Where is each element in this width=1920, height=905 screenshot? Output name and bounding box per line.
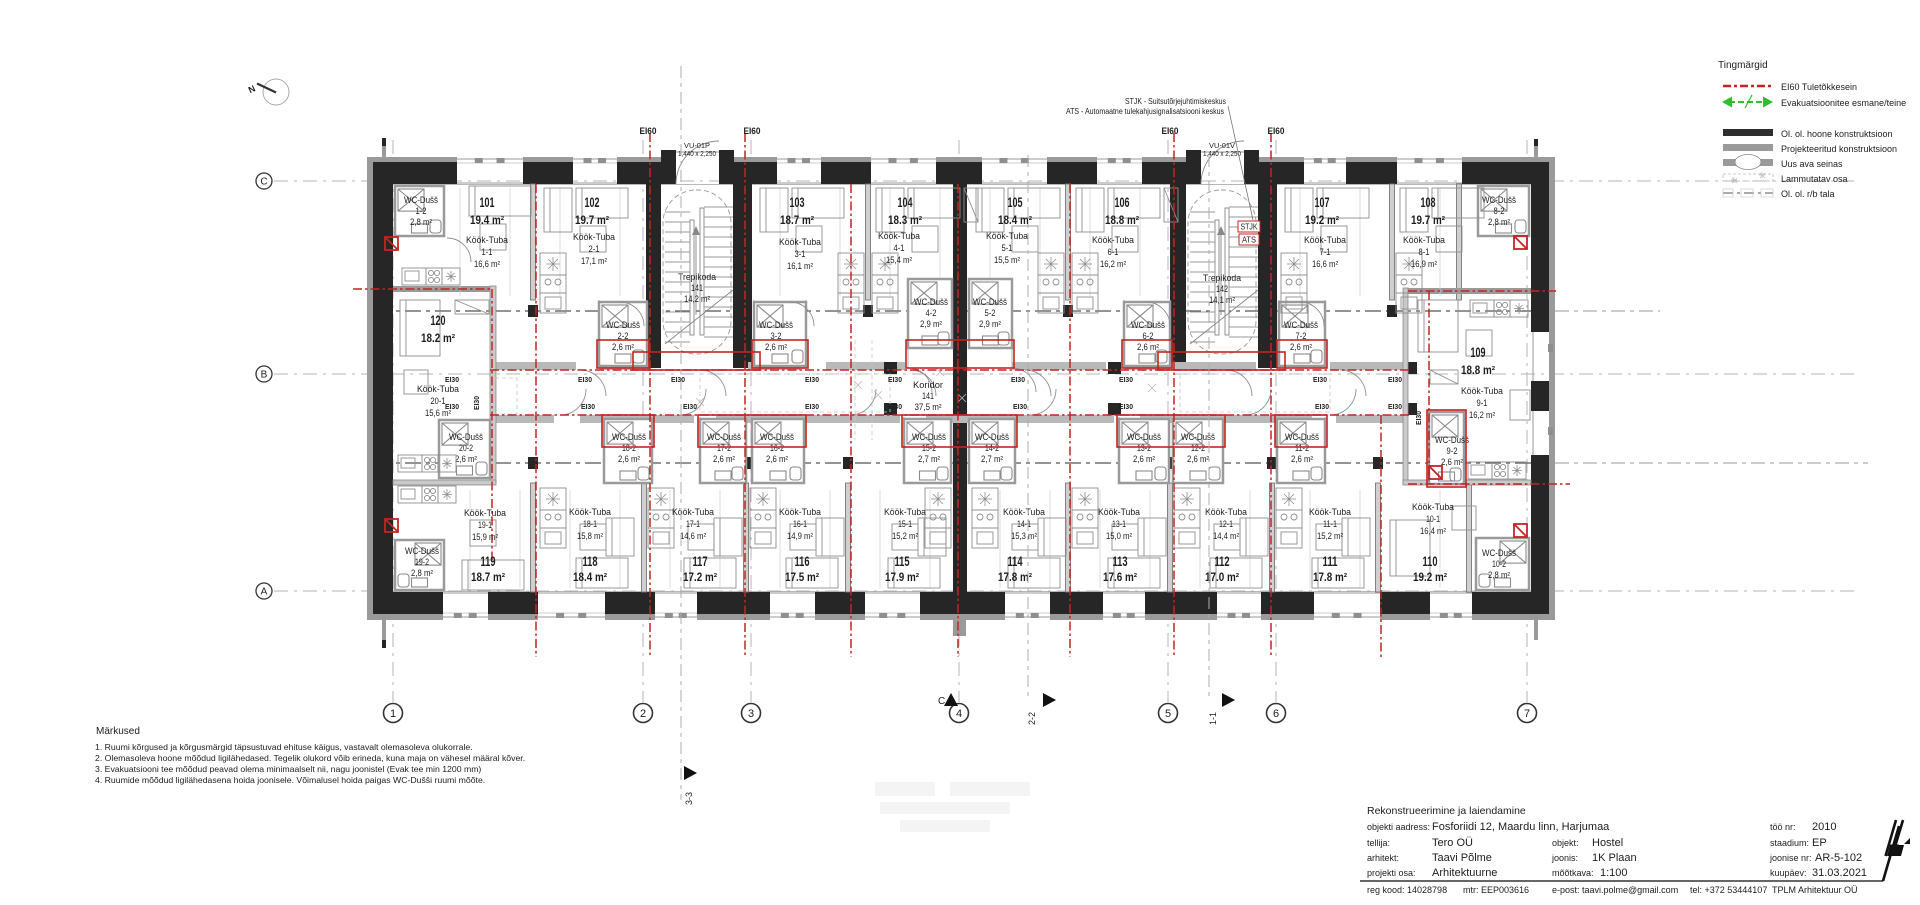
- svg-text:EI30: EI30: [1388, 402, 1402, 411]
- svg-text:17-1: 17-1: [686, 519, 700, 529]
- svg-text:Köök-Tuba: Köök-Tuba: [1309, 507, 1351, 517]
- svg-text:Rekonstrueerimine ja laiendami: Rekonstrueerimine ja laiendamine: [1367, 805, 1526, 817]
- svg-text:5: 5: [1165, 708, 1171, 720]
- svg-text:C: C: [938, 696, 945, 707]
- svg-text:18.4 m²: 18.4 m²: [573, 572, 607, 584]
- svg-text:115: 115: [895, 554, 910, 569]
- svg-text:Köök-Tuba: Köök-Tuba: [779, 507, 821, 517]
- svg-text:EI30: EI30: [1414, 411, 1423, 425]
- svg-text:2,8 m²: 2,8 m²: [410, 217, 432, 227]
- svg-text:mtr: EEP003616: mtr: EEP003616: [1463, 885, 1529, 895]
- svg-text:2,6 m²: 2,6 m²: [713, 454, 735, 464]
- svg-text:108: 108: [1421, 195, 1436, 210]
- svg-text:EI30: EI30: [1313, 375, 1327, 384]
- svg-text:2,6 m²: 2,6 m²: [765, 342, 787, 352]
- svg-text:2,8 m²: 2,8 m²: [1488, 570, 1510, 580]
- svg-text:13-1: 13-1: [1112, 519, 1126, 529]
- svg-text:16,9 m²: 16,9 m²: [1411, 259, 1437, 269]
- svg-text:WC-Dušš: WC-Dušš: [1131, 320, 1165, 330]
- svg-text:17.8 m²: 17.8 m²: [1313, 572, 1347, 584]
- svg-text:11-2: 11-2: [1295, 443, 1309, 453]
- svg-text:EI30: EI30: [888, 402, 902, 411]
- svg-text:TPLM Arhitektuur OÜ: TPLM Arhitektuur OÜ: [1772, 885, 1858, 895]
- svg-text:14-1: 14-1: [1017, 519, 1031, 529]
- svg-text:EI30: EI30: [578, 375, 592, 384]
- svg-text:112: 112: [1215, 554, 1230, 569]
- svg-text:20-2: 20-2: [459, 443, 473, 453]
- svg-text:Köök-Tuba: Köök-Tuba: [573, 232, 615, 242]
- svg-text:16,4 m²: 16,4 m²: [1420, 526, 1446, 536]
- svg-text:EI30: EI30: [581, 402, 595, 411]
- svg-text:6: 6: [1273, 708, 1279, 720]
- svg-text:2,6 m²: 2,6 m²: [1137, 342, 1159, 352]
- svg-text:17-2: 17-2: [717, 443, 731, 453]
- svg-text:Köök-Tuba: Köök-Tuba: [1205, 507, 1247, 517]
- svg-text:20-1: 20-1: [431, 396, 446, 406]
- svg-text:16,2 m²: 16,2 m²: [1469, 410, 1495, 420]
- svg-text:15,2 m²: 15,2 m²: [892, 531, 918, 541]
- svg-text:EI30: EI30: [1315, 402, 1329, 411]
- svg-text:2. Olemasoleva hoone mõõdud li: 2. Olemasoleva hoone mõõdud ligilähedase…: [95, 753, 525, 763]
- svg-text:Uus ava seinas: Uus ava seinas: [1781, 159, 1843, 169]
- svg-text:A: A: [261, 587, 268, 598]
- svg-text:Köök-Tuba: Köök-Tuba: [986, 231, 1028, 241]
- svg-text:5-1: 5-1: [1002, 243, 1013, 253]
- svg-text:AR-5-102: AR-5-102: [1815, 852, 1862, 864]
- svg-text:1-2: 1-2: [416, 206, 427, 216]
- svg-text:WC-Dušš: WC-Dušš: [1482, 195, 1516, 205]
- svg-text:2,6 m²: 2,6 m²: [1290, 342, 1312, 352]
- svg-text:WC-Dušš: WC-Dušš: [612, 432, 646, 442]
- svg-text:Koridor: Koridor: [913, 380, 943, 390]
- svg-text:ATS: ATS: [1242, 236, 1256, 245]
- svg-text:116: 116: [795, 554, 810, 569]
- svg-text:18-1: 18-1: [583, 519, 597, 529]
- svg-text:EI30: EI30: [888, 375, 902, 384]
- svg-text:120: 120: [431, 313, 446, 328]
- svg-text:e-post: taavi.polme@gmail.com: e-post: taavi.polme@gmail.com: [1552, 885, 1678, 895]
- svg-text:17.8 m²: 17.8 m²: [998, 572, 1032, 584]
- svg-text:EI30: EI30: [805, 375, 819, 384]
- svg-text:7-1: 7-1: [1320, 247, 1331, 257]
- svg-text:17,1 m²: 17,1 m²: [581, 256, 607, 266]
- svg-text:WC-Dušš: WC-Dušš: [707, 432, 741, 442]
- svg-text:2,6 m²: 2,6 m²: [618, 454, 640, 464]
- svg-text:18.8 m²: 18.8 m²: [1105, 215, 1139, 227]
- svg-text:10-1: 10-1: [1426, 514, 1440, 524]
- svg-text:37,5 m²: 37,5 m²: [915, 402, 942, 412]
- svg-text:EI30: EI30: [1388, 375, 1402, 384]
- svg-text:EI30: EI30: [445, 375, 459, 384]
- svg-text:102: 102: [585, 195, 600, 210]
- svg-text:3. Evakuatsiooni tee mõõdud pe: 3. Evakuatsiooni tee mõõdud peavad olema…: [95, 764, 481, 774]
- svg-text:14,9 m²: 14,9 m²: [787, 531, 813, 541]
- svg-text:14,4 m²: 14,4 m²: [1213, 531, 1239, 541]
- svg-text:WC-Dušš: WC-Dušš: [759, 320, 793, 330]
- svg-text:EI30: EI30: [1013, 402, 1027, 411]
- svg-text:4-1: 4-1: [894, 243, 905, 253]
- svg-text:103: 103: [790, 195, 805, 210]
- svg-text:2,8 m²: 2,8 m²: [411, 568, 433, 578]
- svg-text:Köök-Tuba: Köök-Tuba: [878, 231, 920, 241]
- svg-text:joonis:: joonis:: [1551, 853, 1578, 863]
- svg-text:9-2: 9-2: [1447, 446, 1458, 456]
- svg-text:WC-Dušš: WC-Dušš: [760, 432, 794, 442]
- svg-text:2,6 m²: 2,6 m²: [1187, 454, 1209, 464]
- svg-text:EI30: EI30: [1119, 402, 1133, 411]
- svg-text:Ol. ol. r/b tala: Ol. ol. r/b tala: [1781, 189, 1835, 199]
- svg-text:117: 117: [693, 554, 708, 569]
- svg-text:17.0 m²: 17.0 m²: [1205, 572, 1239, 584]
- svg-text:15,9 m²: 15,9 m²: [472, 532, 498, 542]
- svg-text:15,2 m²: 15,2 m²: [1317, 531, 1343, 541]
- svg-text:2,6 m²: 2,6 m²: [1133, 454, 1155, 464]
- svg-text:2-2: 2-2: [1027, 712, 1037, 725]
- svg-text:104: 104: [898, 195, 913, 210]
- svg-text:WC-Dušš: WC-Dušš: [973, 297, 1007, 307]
- svg-text:EI30: EI30: [1011, 375, 1025, 384]
- svg-text:17.6 m²: 17.6 m²: [1103, 572, 1137, 584]
- svg-text:Köök-Tuba: Köök-Tuba: [569, 507, 611, 517]
- svg-text:2,7 m²: 2,7 m²: [981, 454, 1003, 464]
- svg-text:3-1: 3-1: [795, 249, 806, 259]
- svg-text:15,3 m²: 15,3 m²: [1011, 531, 1037, 541]
- svg-text:18.7 m²: 18.7 m²: [780, 215, 814, 227]
- svg-text:WC-Dušš: WC-Dušš: [1181, 432, 1215, 442]
- svg-text:19.2 m²: 19.2 m²: [1413, 572, 1447, 584]
- svg-text:Köök-Tuba: Köök-Tuba: [1092, 235, 1134, 245]
- svg-text:19.4 m²: 19.4 m²: [470, 215, 504, 227]
- svg-text:Köök-Tuba: Köök-Tuba: [1098, 507, 1140, 517]
- svg-text:EI30: EI30: [671, 375, 685, 384]
- svg-text:16-2: 16-2: [770, 443, 784, 453]
- svg-text:Arhitektuurne: Arhitektuurne: [1432, 867, 1497, 879]
- svg-text:16,1 m²: 16,1 m²: [787, 261, 813, 271]
- svg-text:WC-Dušš: WC-Dušš: [912, 432, 946, 442]
- svg-text:staadium:: staadium:: [1770, 838, 1809, 848]
- svg-text:19.7 m²: 19.7 m²: [1411, 215, 1445, 227]
- svg-text:Köök-Tuba: Köök-Tuba: [417, 384, 459, 394]
- svg-text:15-2: 15-2: [922, 443, 936, 453]
- svg-text:EI30: EI30: [472, 396, 481, 410]
- svg-text:15,4 m²: 15,4 m²: [886, 255, 912, 265]
- svg-text:WC-Dušš: WC-Dušš: [1482, 548, 1516, 558]
- svg-text:141: 141: [922, 391, 934, 401]
- svg-text:19.7 m²: 19.7 m²: [575, 215, 609, 227]
- svg-text:Trepikoda: Trepikoda: [678, 272, 716, 282]
- svg-text:EI60: EI60: [1268, 126, 1285, 136]
- svg-text:110: 110: [1423, 554, 1438, 569]
- svg-text:9-1: 9-1: [1477, 398, 1488, 408]
- svg-text:2,9 m²: 2,9 m²: [979, 319, 1001, 329]
- svg-text:101: 101: [480, 195, 495, 210]
- svg-text:3-3: 3-3: [684, 792, 694, 805]
- svg-text:joonise nr:: joonise nr:: [1769, 853, 1812, 863]
- svg-text:4: 4: [956, 708, 962, 720]
- svg-text:WC-Dušš: WC-Dušš: [1285, 432, 1319, 442]
- svg-text:Köök-Tuba: Köök-Tuba: [779, 237, 821, 247]
- svg-text:11-1: 11-1: [1323, 519, 1337, 529]
- svg-text:2010: 2010: [1812, 821, 1836, 833]
- svg-text:141: 141: [691, 283, 703, 293]
- svg-text:Köök-Tuba: Köök-Tuba: [1003, 507, 1045, 517]
- svg-text:2,6 m²: 2,6 m²: [1441, 457, 1463, 467]
- svg-text:Märkused: Märkused: [96, 726, 140, 737]
- svg-text:119: 119: [481, 554, 496, 569]
- svg-text:Köök-Tuba: Köök-Tuba: [1461, 386, 1503, 396]
- svg-text:13-2: 13-2: [1137, 443, 1151, 453]
- svg-text:2,6 m²: 2,6 m²: [766, 454, 788, 464]
- svg-text:1: 1: [390, 708, 396, 720]
- svg-text:1-1: 1-1: [482, 247, 493, 257]
- svg-text:EI30: EI30: [683, 402, 697, 411]
- svg-text:31.03.2021: 31.03.2021: [1812, 867, 1867, 879]
- svg-text:15,8 m²: 15,8 m²: [577, 531, 603, 541]
- svg-text:2: 2: [640, 708, 646, 720]
- svg-text:15-1: 15-1: [898, 519, 912, 529]
- svg-text:Projekteeritud konstruktsioon: Projekteeritud konstruktsioon: [1781, 144, 1897, 154]
- svg-text:18.4 m²: 18.4 m²: [998, 215, 1032, 227]
- svg-text:4. Ruumide mõõdud ligilähedase: 4. Ruumide mõõdud ligilähedasena hoida j…: [95, 775, 485, 785]
- svg-text:Taavi Põlme: Taavi Põlme: [1432, 852, 1492, 864]
- svg-text:Lammutatav osa: Lammutatav osa: [1781, 174, 1848, 184]
- svg-text:3: 3: [748, 708, 754, 720]
- svg-text:Fosforiidi 12, Maardu linn, Ha: Fosforiidi 12, Maardu linn, Harjumaa: [1432, 821, 1610, 833]
- svg-text:Köök-Tuba: Köök-Tuba: [1403, 235, 1445, 245]
- svg-text:B: B: [261, 370, 268, 381]
- svg-text:18.7 m²: 18.7 m²: [471, 572, 505, 584]
- svg-text:19.2 m²: 19.2 m²: [1305, 215, 1339, 227]
- svg-text:15,0 m²: 15,0 m²: [1106, 531, 1132, 541]
- svg-text:C: C: [260, 177, 267, 188]
- svg-text:Ol. ol. hoone konstruktsioon: Ol. ol. hoone konstruktsioon: [1781, 129, 1893, 139]
- svg-text:8-1: 8-1: [1419, 247, 1430, 257]
- svg-text:16,6 m²: 16,6 m²: [474, 259, 500, 269]
- svg-text:WC-Dušš: WC-Dušš: [914, 297, 948, 307]
- svg-text:WC-Dušš: WC-Dušš: [1127, 432, 1161, 442]
- svg-text:objekt:: objekt:: [1552, 838, 1579, 848]
- svg-text:118: 118: [583, 554, 598, 569]
- svg-text:1. Ruumi kõrgused ja kõrgusmär: 1. Ruumi kõrgused ja kõrgusmärgid täpsus…: [95, 742, 473, 752]
- svg-text:tel: +372 53444107: tel: +372 53444107: [1690, 885, 1767, 895]
- svg-text:2,6 m²: 2,6 m²: [1291, 454, 1313, 464]
- svg-text:Köök-Tuba: Köök-Tuba: [884, 507, 926, 517]
- svg-text:STJK - Suitsutõrjejuhtimiskesk: STJK - Suitsutõrjejuhtimiskeskus: [1125, 97, 1226, 106]
- svg-text:107: 107: [1315, 195, 1330, 210]
- svg-text:Köök-Tuba: Köök-Tuba: [464, 508, 506, 518]
- svg-text:14,6 m²: 14,6 m²: [680, 531, 706, 541]
- svg-text:19-1: 19-1: [478, 520, 492, 530]
- svg-text:12-1: 12-1: [1219, 519, 1233, 529]
- svg-text:6-1: 6-1: [1108, 247, 1119, 257]
- svg-text:arhitekt:: arhitekt:: [1367, 853, 1399, 863]
- svg-text:1,440 x 2,250: 1,440 x 2,250: [678, 151, 716, 158]
- svg-text:kuupäev:: kuupäev:: [1770, 868, 1807, 878]
- svg-text:WC-Dušš: WC-Dušš: [606, 320, 640, 330]
- svg-text:18.3 m²: 18.3 m²: [888, 215, 922, 227]
- svg-text:1:100: 1:100: [1600, 867, 1628, 879]
- svg-text:EI60: EI60: [1162, 126, 1179, 136]
- svg-text:WC-Dušš: WC-Dušš: [405, 546, 439, 556]
- svg-text:7: 7: [1524, 708, 1530, 720]
- svg-text:Evakuatsioonitee esmane/teine: Evakuatsioonitee esmane/teine: [1781, 98, 1906, 108]
- svg-text:WC-Dušš: WC-Dušš: [1284, 320, 1318, 330]
- svg-text:2,6 m²: 2,6 m²: [612, 342, 634, 352]
- svg-text:tellija:: tellija:: [1367, 838, 1390, 848]
- svg-text:WC-Dušš: WC-Dušš: [449, 432, 483, 442]
- svg-text:5-2: 5-2: [985, 308, 996, 318]
- svg-text:16-1: 16-1: [793, 519, 807, 529]
- svg-text:mõõtkava:: mõõtkava:: [1552, 868, 1594, 878]
- svg-text:106: 106: [1115, 195, 1130, 210]
- svg-text:2,7 m²: 2,7 m²: [918, 454, 940, 464]
- svg-text:114: 114: [1008, 554, 1023, 569]
- svg-text:töö nr:: töö nr:: [1770, 822, 1796, 832]
- svg-text:Köök-Tuba: Köök-Tuba: [466, 235, 508, 245]
- svg-text:19-2: 19-2: [415, 557, 429, 567]
- svg-text:Köök-Tuba: Köök-Tuba: [1304, 235, 1346, 245]
- svg-text:18-2: 18-2: [622, 443, 636, 453]
- svg-text:4-2: 4-2: [926, 308, 937, 318]
- svg-text:111: 111: [1323, 554, 1338, 569]
- svg-text:Köök-Tuba: Köök-Tuba: [672, 507, 714, 517]
- svg-text:14,1 m²: 14,1 m²: [1209, 295, 1235, 305]
- svg-text:2,9 m²: 2,9 m²: [920, 319, 942, 329]
- svg-text:17.5 m²: 17.5 m²: [785, 572, 819, 584]
- svg-text:projekti osa:: projekti osa:: [1367, 868, 1416, 878]
- svg-text:2,8 m²: 2,8 m²: [1488, 217, 1510, 227]
- svg-text:1K Plaan: 1K Plaan: [1592, 852, 1637, 864]
- svg-text:12-2: 12-2: [1191, 443, 1205, 453]
- svg-text:14,2 m²: 14,2 m²: [684, 294, 710, 304]
- svg-text:113: 113: [1113, 554, 1128, 569]
- svg-text:10-2: 10-2: [1492, 559, 1506, 569]
- svg-text:16,2 m²: 16,2 m²: [1100, 259, 1126, 269]
- svg-text:15,5 m²: 15,5 m²: [994, 255, 1020, 265]
- svg-text:WC-Dušš: WC-Dušš: [975, 432, 1009, 442]
- svg-text:18.8 m²: 18.8 m²: [1461, 365, 1495, 377]
- svg-text:142: 142: [1216, 284, 1228, 294]
- svg-text:WC-Dušš: WC-Dušš: [404, 195, 438, 205]
- svg-text:Hostel: Hostel: [1592, 837, 1623, 849]
- svg-text:2,6 m²: 2,6 m²: [455, 454, 477, 464]
- svg-text:105: 105: [1008, 195, 1023, 210]
- svg-text:EI60: EI60: [640, 126, 657, 136]
- svg-text:17.9 m²: 17.9 m²: [885, 572, 919, 584]
- svg-text:Tero OÜ: Tero OÜ: [1432, 837, 1473, 849]
- svg-text:reg kood: 14028798: reg kood: 14028798: [1367, 885, 1447, 895]
- svg-text:VU-01V: VU-01V: [1209, 143, 1235, 150]
- svg-text:EI60 Tuletõkkesein: EI60 Tuletõkkesein: [1781, 82, 1857, 92]
- svg-text:ATS - Automaatne tulekahjusign: ATS - Automaatne tulekahjusignalisatsioo…: [1066, 107, 1224, 116]
- svg-text:EP: EP: [1812, 837, 1827, 849]
- svg-text:EI30: EI30: [805, 402, 819, 411]
- svg-text:16,6 m²: 16,6 m²: [1312, 259, 1338, 269]
- svg-text:1-1: 1-1: [1208, 712, 1218, 725]
- svg-text:objekti aadress:: objekti aadress:: [1367, 822, 1430, 832]
- svg-text:15,6 m²: 15,6 m²: [425, 408, 451, 418]
- svg-text:14-2: 14-2: [985, 443, 999, 453]
- svg-text:109: 109: [1471, 345, 1486, 360]
- svg-text:17.2 m²: 17.2 m²: [683, 572, 717, 584]
- svg-text:Köök-Tuba: Köök-Tuba: [1412, 502, 1454, 512]
- svg-text:EI30: EI30: [1119, 375, 1133, 384]
- svg-text:Tingmärgid: Tingmärgid: [1718, 60, 1768, 71]
- svg-text:2-1: 2-1: [589, 244, 600, 254]
- svg-text:VU-01P: VU-01P: [684, 143, 710, 150]
- svg-text:EI60: EI60: [744, 126, 761, 136]
- svg-text:8-2: 8-2: [1494, 206, 1505, 216]
- svg-text:18.2 m²: 18.2 m²: [421, 333, 455, 345]
- svg-text:WC-Dušš: WC-Dušš: [1435, 435, 1469, 445]
- svg-text:STJK: STJK: [1241, 223, 1259, 232]
